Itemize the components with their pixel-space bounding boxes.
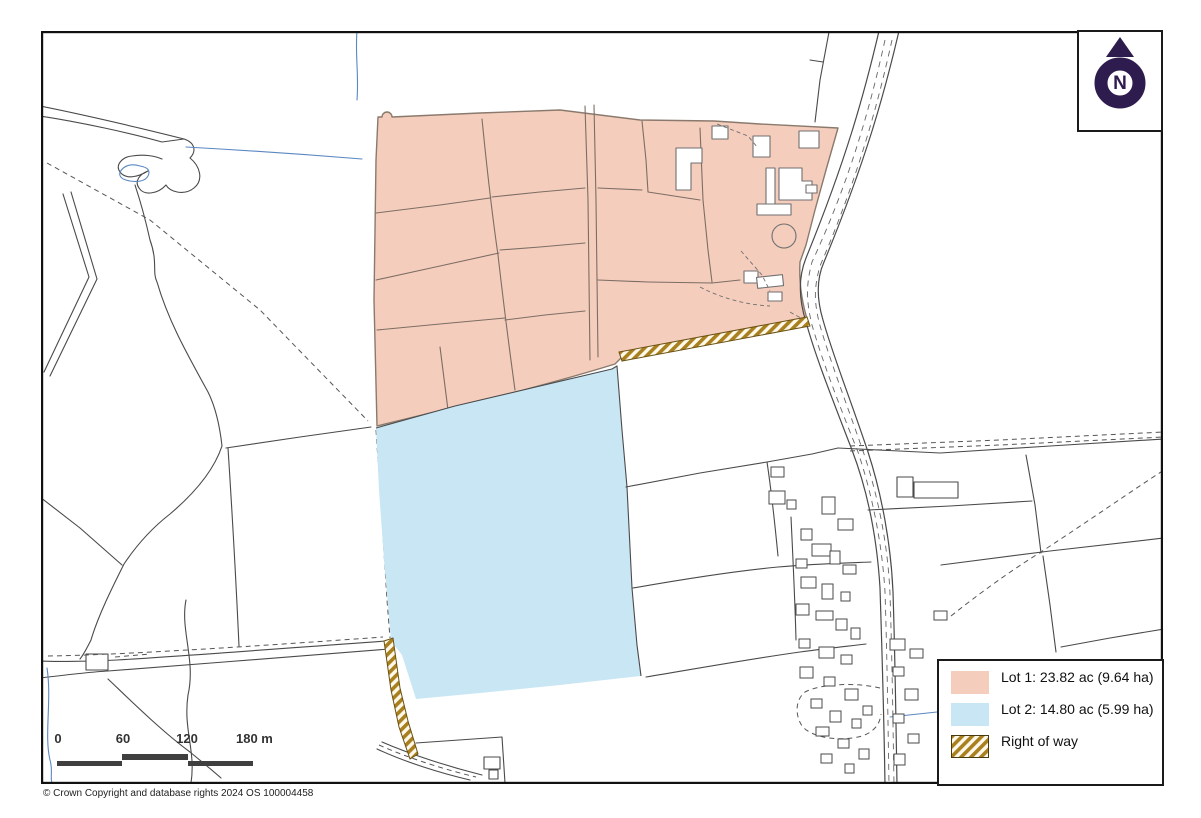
scale-tick-0: 0 <box>54 731 61 746</box>
lot1-swatch <box>951 671 989 694</box>
scale-tick-60: 60 <box>116 731 130 746</box>
scale-tick-180m: 180 m <box>236 731 273 746</box>
copyright-notice: © Crown Copyright and database rights 20… <box>43 788 313 799</box>
right-of-way-hatch-graphic <box>951 735 989 758</box>
lot2-label: Lot 2: 14.80 ac (5.99 ha) <box>1001 701 1154 718</box>
lot2-swatch <box>951 703 989 726</box>
right-of-way-label: Right of way <box>1001 733 1078 750</box>
scale-tick-120: 120 <box>176 731 198 746</box>
scale-segment-2 <box>122 754 188 760</box>
legend-item-lot1: Lot 1: 23.82 ac (9.64 ha) <box>951 669 1154 694</box>
legend-item-right-of-way: Right of way <box>951 733 1154 758</box>
lot1-label: Lot 1: 23.82 ac (9.64 ha) <box>1001 669 1154 686</box>
north-letter: N <box>1079 73 1161 95</box>
north-arrow-triangle <box>1106 37 1134 57</box>
legend: Lot 1: 23.82 ac (9.64 ha) Lot 2: 14.80 a… <box>937 659 1164 786</box>
legend-item-lot2: Lot 2: 14.80 ac (5.99 ha) <box>951 701 1154 726</box>
scale-segment-1 <box>57 761 122 766</box>
right-of-way-swatch <box>951 735 989 758</box>
scale-segment-3 <box>188 761 253 766</box>
land-plan-map: N Lot 1: 23.82 ac (9.64 ha) Lot 2: 14.80… <box>0 0 1201 818</box>
north-arrow: N <box>1077 30 1163 132</box>
